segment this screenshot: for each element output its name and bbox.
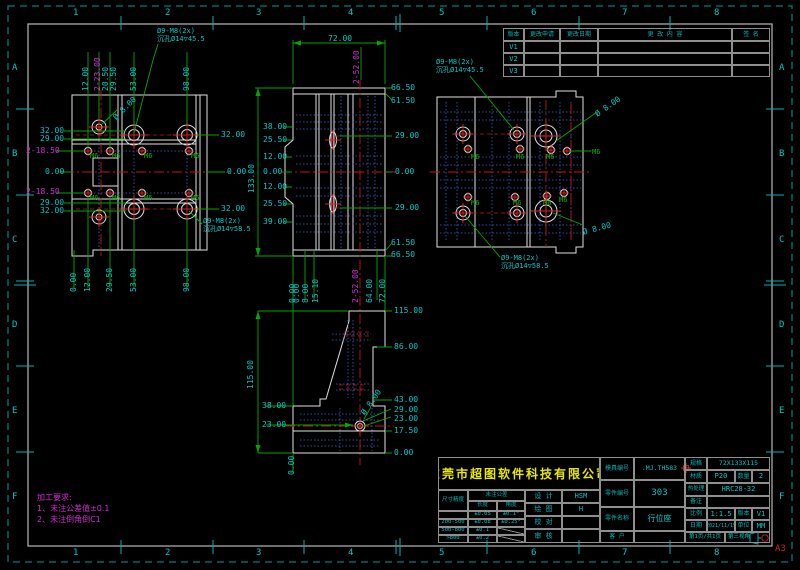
dim-label: 29.00 [40, 135, 64, 143]
machining-notes: 加工要求: 1、未注公差值±0.1 2、未注倒角倒C1 [37, 492, 110, 525]
revision-row-v2: V2 [503, 53, 524, 65]
dim-label: 29.00 [394, 406, 418, 414]
hole-callout: Ø9-M8(2x) [203, 218, 241, 225]
signoff-label-draw: 绘 图 [525, 503, 562, 516]
dim-label: 0.00 [293, 284, 301, 303]
profile-view-outline [293, 311, 385, 453]
dim-label: 39.00 [263, 218, 287, 226]
revision-header-version: 版本 [503, 28, 524, 41]
tolerance-length-value: ±0.08 [468, 519, 497, 527]
cad-canvas: 1234567812345678ABCDEFABCDEFA312.002-23.… [0, 0, 800, 570]
hole-callout: Ø9-M8(2x) [501, 255, 539, 262]
dim-label: 61.50 [391, 97, 415, 105]
thread-label: M6 [471, 200, 479, 207]
dim-label: 2-18.50 [26, 188, 60, 196]
dim-label: 29.50 [106, 268, 114, 292]
signoff-value-design: HSM [562, 490, 600, 503]
revision-cell [732, 53, 770, 65]
dim-label: 0.00 [227, 168, 246, 176]
zone-label: 6 [531, 9, 536, 18]
revision-cell [560, 53, 598, 65]
zone-label: B [779, 150, 784, 159]
dim-label: 98.00 [183, 67, 191, 91]
zone-label: A [779, 64, 784, 73]
zone-label: 3 [256, 9, 261, 18]
signoff-label-approve: 审 核 [525, 529, 562, 543]
thread-label: M6 [516, 154, 524, 161]
zone-label: F [12, 493, 17, 502]
signoff-label-design: 设 计 [525, 490, 562, 503]
zone-label: 2 [165, 9, 170, 18]
version-value: V1 [752, 508, 770, 520]
revision-cell [598, 53, 732, 65]
rear-view[interactable] [430, 76, 597, 257]
hole-callout: 沉孔Ø14▽58.5 [203, 226, 251, 233]
zone-label: 1 [73, 9, 78, 18]
heat-treat-value: HRC28-32 [707, 483, 770, 496]
section-view-centerlines [282, 80, 396, 465]
dim-label: 0.00 [263, 168, 282, 176]
dim-label: 115.00 [247, 360, 255, 389]
page-indicator: 第1页/共1页 [685, 532, 725, 543]
zone-label: A [12, 64, 17, 73]
dim-label: 2-52.00 [352, 269, 360, 303]
dim-label: 12.00 [84, 268, 92, 292]
tolerance-length-value: ±0.1 [468, 527, 497, 535]
tolerance-na-cell [497, 535, 525, 543]
zone-label: 1 [73, 549, 78, 558]
zone-label: F [779, 493, 784, 502]
tolerance-angle-value: ±0.1° [497, 511, 525, 519]
tolerance-col-angle: 角度 [497, 501, 525, 511]
dim-label: 53.00 [130, 67, 138, 91]
thread-label: M6 [559, 197, 567, 204]
thread-label: M6 [471, 154, 479, 161]
zone-label: 3 [256, 549, 261, 558]
mold-no-label: 模具编号 [600, 457, 634, 480]
zone-label: 5 [439, 9, 444, 18]
zone-label: 7 [622, 9, 627, 18]
tolerance-col-length: 长度 [468, 501, 497, 511]
dim-label: 32.00 [221, 131, 245, 139]
zone-label: 2 [165, 549, 170, 558]
revision-row-v3: V3 [503, 65, 524, 77]
zone-label: 4 [348, 549, 353, 558]
revision-cell [598, 65, 732, 77]
revision-cell [524, 53, 560, 65]
dim-label: 0.00 [45, 168, 64, 176]
revision-header-date: 更改日期 [560, 28, 598, 41]
dim-label: 61.50 [391, 239, 415, 247]
zone-label: D [779, 321, 784, 330]
dim-label: 29.00 [395, 132, 419, 140]
part-name-value: 行位座 [634, 507, 685, 531]
revision-cell [560, 65, 598, 77]
dim-label: 64.00 [366, 279, 374, 303]
dim-label: 32.00 [40, 207, 64, 215]
dim-label: 38.00 [263, 123, 287, 131]
tolerance-group-header: 未注公差 [468, 490, 525, 501]
revision-header-request: 更改申请 [524, 28, 560, 41]
sheet-size-label: A3 [775, 545, 786, 554]
title-block: 东莞市超图软件科技有限公司 尺寸精度 未注公差 长度 角度 ±0.05 ±0.1… [438, 457, 770, 543]
qty-label: 数量 [735, 470, 752, 483]
dim-label: 17.50 [394, 427, 418, 435]
spec-label: 规格 [685, 457, 707, 470]
mold-no-value: .MJ.TH583 [634, 457, 685, 480]
thread-label: M6 [90, 153, 98, 160]
dim-label: 38.00 [262, 402, 286, 410]
company-name: 东莞市超图软件科技有限公司 [438, 457, 600, 490]
zone-label: 4 [348, 9, 353, 18]
revision-cell [524, 65, 560, 77]
notes-item-1: 1、未注公差值±0.1 [37, 504, 110, 513]
customer-label: 客 户 [600, 531, 634, 543]
notes-title: 加工要求: [37, 493, 72, 502]
zone-label: 8 [714, 549, 719, 558]
thread-label: M6 [592, 149, 600, 156]
zone-label: 7 [622, 549, 627, 558]
zone-label: C [779, 236, 784, 245]
hole-callout: Ø9-M8(2x) [436, 59, 474, 66]
rear-view-hole-crosses [453, 121, 572, 226]
tolerance-length-value: ±0.2 [468, 535, 497, 543]
dim-label: 23.00 [262, 421, 286, 429]
notes-item-2: 2、未注倒角倒C1 [37, 515, 101, 524]
heat-treat-label: 热处理 [685, 483, 707, 496]
dim-label: 0.00 [394, 449, 413, 457]
revision-cell [732, 41, 770, 53]
dim-label: 0.00 [395, 168, 414, 176]
qty-value: 2 [752, 470, 770, 483]
signoff-value-approve [562, 529, 600, 543]
version-label: 版本 [735, 508, 752, 520]
thread-label: M6 [191, 153, 199, 160]
dim-label: 2-52.00 [353, 50, 361, 84]
projection-angle-label: 第三视角 [725, 532, 770, 543]
thread-label: M6 [90, 195, 98, 202]
scale-label: 比例 [685, 508, 707, 520]
hole-callout: 沉孔Ø14▽45.5 [157, 36, 205, 43]
zone-label: 5 [439, 549, 444, 558]
dim-label: 15.10 [312, 279, 320, 303]
dim-label: 86.00 [394, 343, 418, 351]
tolerance-corner-label: 尺寸精度 [438, 490, 468, 511]
tolerance-length-value: ±0.05 [468, 511, 497, 519]
date-value: 2021/11/15 [707, 520, 735, 532]
dim-label: 29.50 [110, 67, 118, 91]
dim-label: 43.00 [394, 396, 418, 404]
part-name-label: 零件名称 [600, 507, 634, 531]
dim-label: 133.00 [248, 164, 256, 193]
dim-label: 32.00 [221, 205, 245, 213]
tolerance-range [438, 511, 468, 519]
zone-label: E [12, 407, 17, 416]
dim-label: 0.00 [70, 273, 78, 292]
remark-label: 备注 [685, 496, 707, 508]
customer-value [634, 531, 685, 543]
dim-label: 25.50 [263, 136, 287, 144]
tolerance-na-cell [497, 527, 525, 535]
spec-value: 72X133X115 [707, 457, 770, 470]
tolerance-range: 500-800 [438, 527, 468, 535]
dim-label: 25.50 [263, 200, 287, 208]
zone-label: D [12, 321, 17, 330]
dim-label: 66.50 [391, 84, 415, 92]
thread-label: M6 [112, 195, 120, 202]
signoff-value-check [562, 516, 600, 529]
revision-cell [560, 41, 598, 53]
dim-label: 23.00 [394, 415, 418, 423]
part-no-label: 零件编号 [600, 480, 634, 507]
thread-label: M6 [144, 153, 152, 160]
thread-label: M6 [513, 200, 521, 207]
material-value: P20 [707, 470, 735, 483]
dim-label: 29.00 [395, 204, 419, 212]
remark-value [707, 496, 770, 508]
tolerance-range: 200-500 [438, 519, 468, 527]
zone-label: 8 [714, 9, 719, 18]
zone-label: 6 [531, 549, 536, 558]
revision-row-v1: V1 [503, 41, 524, 53]
dim-label: 72.00 [379, 279, 387, 303]
thread-label: M6 [546, 154, 554, 161]
tolerance-range: >800 [438, 535, 468, 543]
dim-label: 2-18.50 [26, 147, 60, 155]
dim-label: 0.00 [288, 456, 296, 475]
revision-table: 版本 更改申请 更改日期 更 改 内 容 签 名 V1 V2 V3 [503, 28, 770, 77]
dim-label: 12.00 [263, 153, 287, 161]
thread-label: M6 [191, 195, 199, 202]
scale-value: 1:1.5 [707, 508, 735, 520]
zone-label: E [779, 407, 784, 416]
dim-label: 72.00 [328, 35, 352, 43]
signoff-value-draw: H [562, 503, 600, 516]
dim-label: 98.00 [183, 268, 191, 292]
dim-label: 12.00 [82, 67, 90, 91]
dim-label: 12.00 [263, 183, 287, 191]
hole-callout: Ø9-M8(2x) [157, 28, 195, 35]
unit-value: MM [752, 520, 770, 532]
revision-header-sign: 签 名 [732, 28, 770, 41]
revision-cell [598, 41, 732, 53]
signoff-label-check: 校 对 [525, 516, 562, 529]
zone-label: B [12, 150, 17, 159]
rear-view-leader-lines [465, 76, 597, 257]
revision-cell [524, 41, 560, 53]
dim-label: 115.00 [394, 307, 423, 315]
tolerance-angle-value: ±0.25° [497, 519, 525, 527]
thread-label: M6 [112, 153, 120, 160]
date-label: 日期 [685, 520, 707, 532]
thread-label: M6 [144, 195, 152, 202]
thread-label: M6 [543, 200, 551, 207]
dim-label: 8.00 [302, 284, 310, 303]
unit-label: 单位 [735, 520, 752, 532]
zone-label: C [12, 236, 17, 245]
part-no-value: 303 [634, 480, 685, 507]
revision-cell [732, 65, 770, 77]
hole-callout: 沉孔Ø14▽45.5 [436, 67, 484, 74]
hole-callout: 沉孔Ø14▽58.5 [501, 263, 549, 270]
dim-label: 53.00 [130, 268, 138, 292]
dim-label: 66.50 [391, 251, 415, 259]
revision-header-content: 更 改 内 容 [598, 28, 732, 41]
material-label: 材质 [685, 470, 707, 483]
